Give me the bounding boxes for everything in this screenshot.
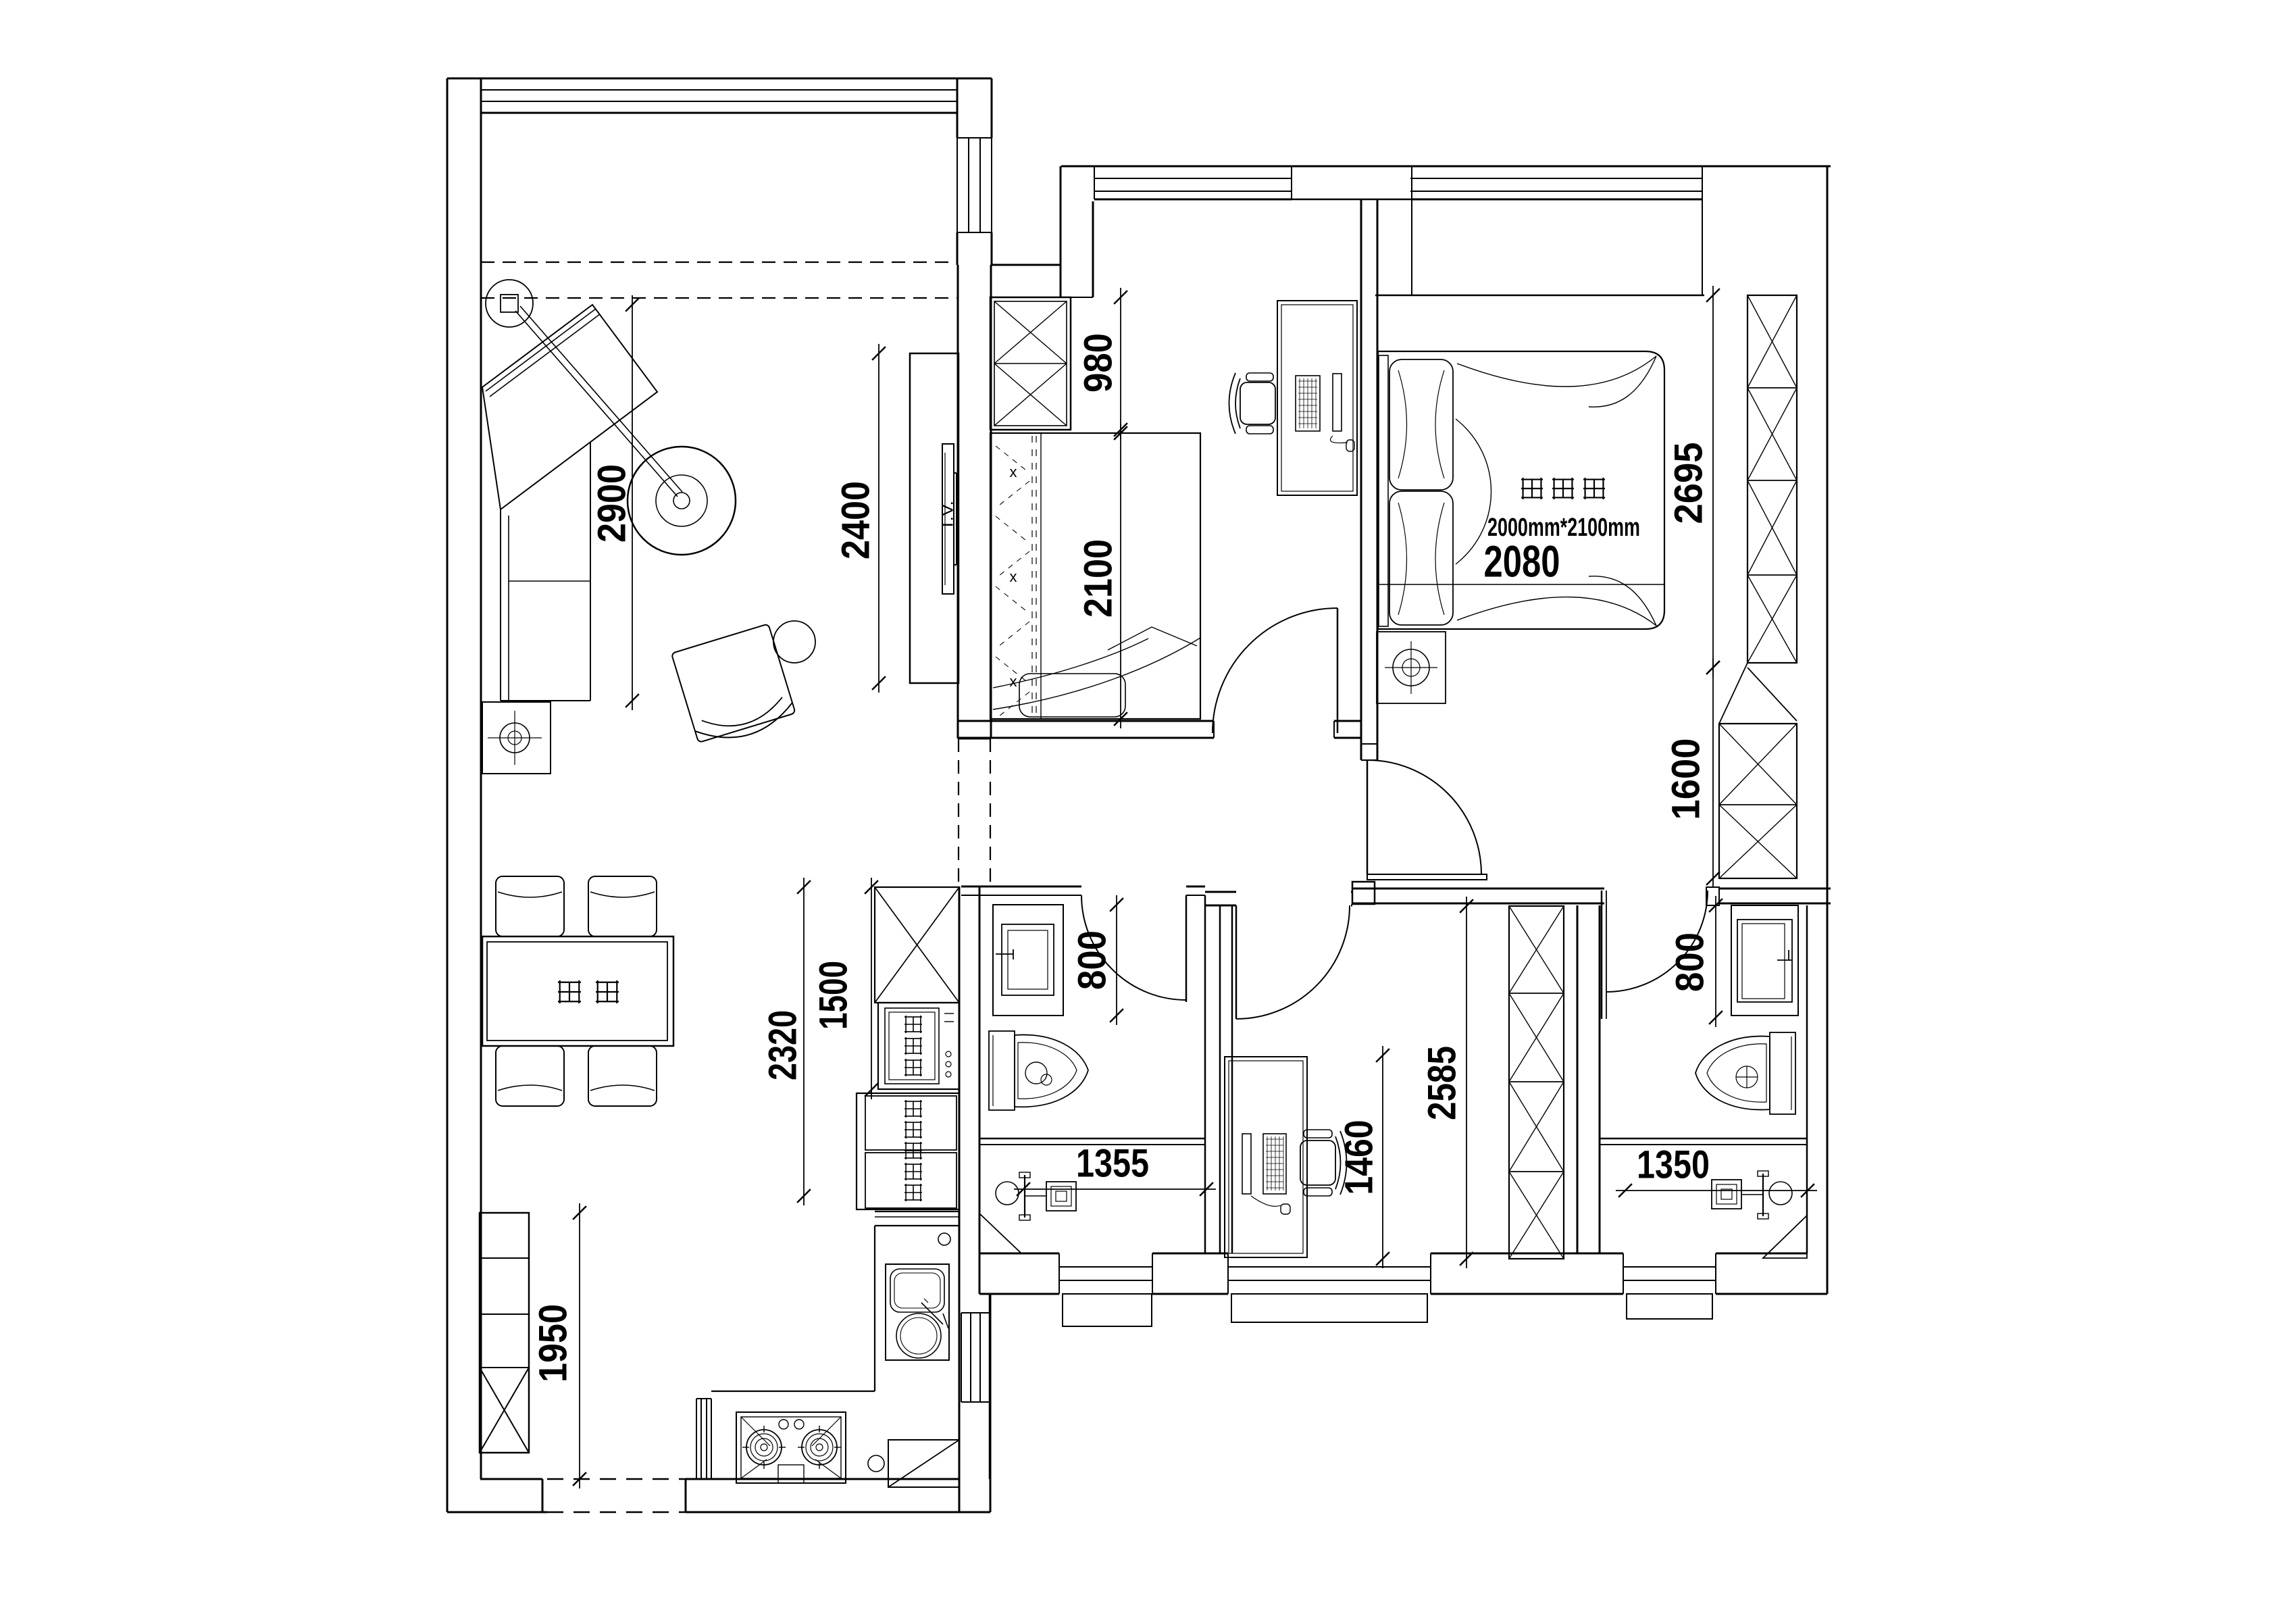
svg-text:x: x <box>1010 673 1017 690</box>
svg-text:800: 800 <box>1070 930 1114 990</box>
svg-text:1350: 1350 <box>1637 1143 1710 1186</box>
svg-text:T.V.: T.V. <box>938 501 956 530</box>
svg-text:1460: 1460 <box>1337 1120 1381 1195</box>
svg-text:2585: 2585 <box>1420 1046 1464 1120</box>
svg-text:2900: 2900 <box>590 464 634 543</box>
svg-text:2320: 2320 <box>761 1010 805 1080</box>
svg-text:1600: 1600 <box>1664 739 1708 820</box>
svg-text:2100: 2100 <box>1076 539 1120 618</box>
svg-text:800: 800 <box>1668 932 1712 992</box>
svg-text:x: x <box>1010 568 1017 585</box>
svg-text:1500: 1500 <box>811 961 855 1030</box>
svg-text:x: x <box>1010 464 1017 480</box>
svg-text:980: 980 <box>1076 333 1120 393</box>
svg-text:1355: 1355 <box>1076 1141 1149 1185</box>
svg-text:1950: 1950 <box>531 1304 575 1382</box>
svg-text:2400: 2400 <box>834 481 877 559</box>
svg-text:2695: 2695 <box>1666 443 1710 524</box>
svg-text:2080: 2080 <box>1484 536 1560 586</box>
